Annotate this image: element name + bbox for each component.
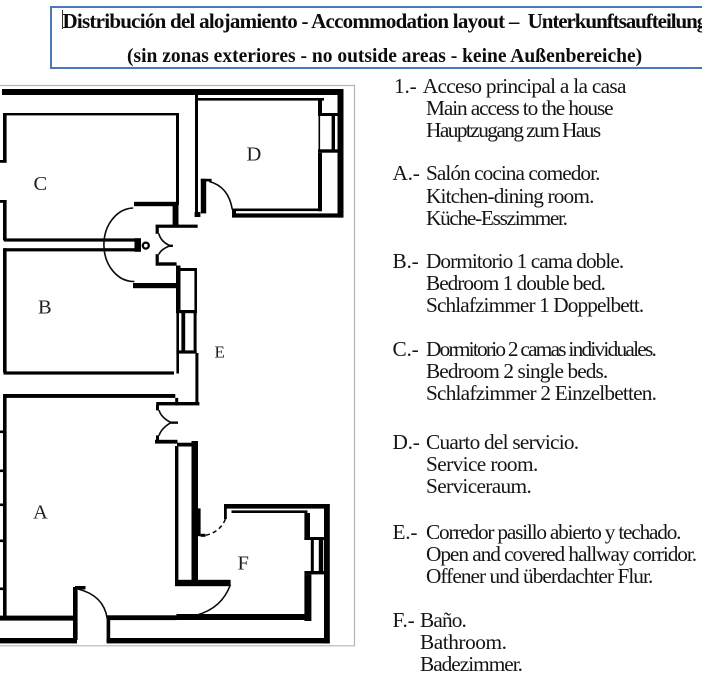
svg-text:E: E xyxy=(215,343,225,362)
svg-text:C: C xyxy=(34,173,48,195)
svg-text:F: F xyxy=(238,552,249,574)
svg-text:A: A xyxy=(33,502,48,524)
svg-text:B: B xyxy=(38,297,52,319)
svg-text:D: D xyxy=(247,144,262,166)
